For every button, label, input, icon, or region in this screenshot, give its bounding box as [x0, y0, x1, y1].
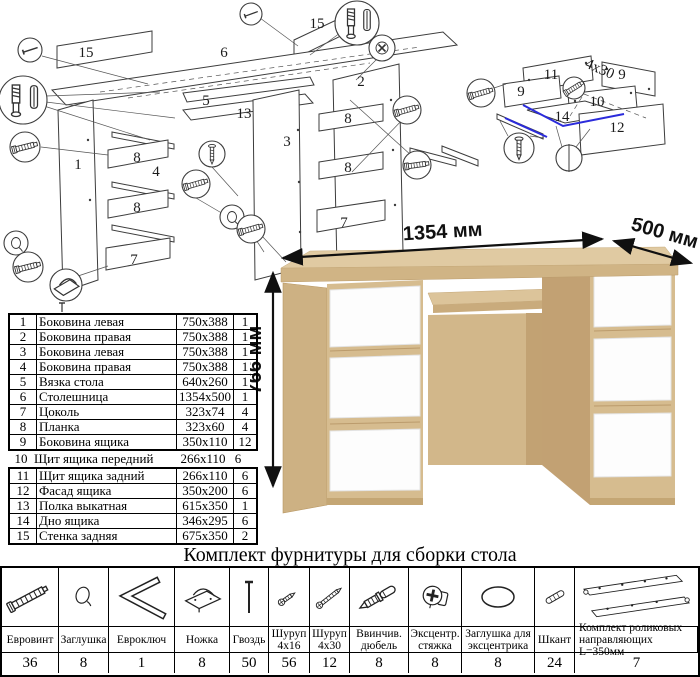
- callout-confirmat: [393, 96, 421, 124]
- hardware-name: Заглушка: [59, 626, 109, 653]
- hardware-name: Ножка: [175, 626, 230, 653]
- hardware-qty: 8: [462, 653, 535, 673]
- table-row: 8 Планка 323x60 4: [9, 420, 257, 435]
- part-label: 4: [152, 164, 160, 180]
- callout-nail: [240, 3, 262, 25]
- part-size: 350x110: [177, 435, 234, 451]
- part-label: 8: [133, 200, 141, 216]
- part-name: Боковина правая: [37, 330, 177, 345]
- part-name: Планка: [37, 420, 177, 435]
- cap-icon: [59, 568, 109, 626]
- part-qty: 1: [234, 390, 258, 405]
- confirmat-screw-icon: [2, 568, 59, 626]
- drawer-slides-icon: [575, 568, 698, 626]
- part-size: 750x388: [177, 345, 234, 360]
- part-name: Стенка задняя: [37, 529, 177, 545]
- part-name: Цоколь: [37, 405, 177, 420]
- part-name: Дно ящика: [37, 514, 177, 529]
- part-number: 5: [9, 375, 37, 390]
- callout-confirmat: [467, 79, 495, 107]
- part-number: 6: [9, 390, 37, 405]
- wood-dowel-icon: [535, 568, 575, 626]
- hardware-name: Эксцентр. стяжка: [409, 626, 462, 653]
- parts-table-bottom: 11 Щит ящика задний 266x110 6 12 Фасад я…: [8, 467, 258, 545]
- hardware-qty: 8: [175, 653, 230, 673]
- hardware-qty: 36: [2, 653, 59, 673]
- table-row: 10 Щит ящика передний 266x110 6: [8, 451, 245, 467]
- table-row: 1 Боковина левая 750x388 1: [9, 314, 257, 330]
- part-label: 1: [74, 157, 82, 173]
- part-size: 615x350: [177, 499, 234, 514]
- callout-dowel-sleeve: [0, 76, 47, 124]
- part-size: 640x260: [177, 375, 234, 390]
- callout-screw-4x30: [563, 77, 585, 99]
- part-size: 266x110: [175, 452, 231, 466]
- foot-icon: [175, 568, 230, 626]
- part-label: 14: [555, 109, 571, 125]
- part-qty: 6: [234, 484, 258, 499]
- hardware-name: Евроключ: [109, 626, 175, 653]
- table-row: 5 Вязка стола 640x260 1: [9, 375, 257, 390]
- part-name: Боковина правая: [37, 360, 177, 375]
- part-label: 10: [590, 94, 605, 110]
- part-qty: 1: [234, 360, 258, 375]
- hardware-qty: 56: [269, 653, 310, 673]
- part-number: 14: [9, 514, 37, 529]
- part-name: Щит ящика задний: [37, 468, 177, 484]
- callout-nail: [18, 38, 42, 62]
- hardware-qty: 50: [230, 653, 269, 673]
- parts-table: 1 Боковина левая 750x388 1 2 Боковина пр…: [8, 313, 245, 545]
- part-size: 750x388: [177, 314, 234, 330]
- part-label: 15: [310, 16, 325, 32]
- part-size: 750x388: [177, 360, 234, 375]
- table-row: 11 Щит ящика задний 266x110 6: [9, 468, 257, 484]
- table-row: 7 Цоколь 323x74 4: [9, 405, 257, 420]
- part-qty: 1: [234, 330, 258, 345]
- cam-cap-icon: [462, 568, 535, 626]
- part-back-panel-left: [57, 31, 152, 68]
- part-number: 1: [9, 314, 37, 330]
- part-size: 750x388: [177, 330, 234, 345]
- part-label: 6: [220, 45, 228, 61]
- part-label: 2: [357, 74, 365, 90]
- table-row: 14 Дно ящика 346x295 6: [9, 514, 257, 529]
- part-name: Боковина левая: [37, 314, 177, 330]
- part-label: 7: [130, 252, 138, 268]
- part-size: 346x295: [177, 514, 234, 529]
- hex-key-icon: [109, 568, 175, 626]
- part-name: Столешница: [37, 390, 177, 405]
- hardware-qty: 7: [575, 653, 698, 673]
- left-drawers: [330, 286, 420, 491]
- threaded-dowel-icon: [350, 568, 409, 626]
- hardware-name: Шкант: [535, 626, 575, 653]
- hardware-table: Евровинт 36 Заглушка 8 Евроключ 1: [0, 566, 700, 677]
- hardware-name: Заглушка для эксцентрика: [462, 626, 535, 653]
- callout-screw: [199, 141, 225, 167]
- part-qty: 1: [234, 345, 258, 360]
- callout-dowel-sleeve: [335, 1, 379, 45]
- part-qty: 1: [234, 499, 258, 514]
- hardware-qty: 12: [310, 653, 350, 673]
- part-number: 7: [9, 405, 37, 420]
- hardware-qty: 24: [535, 653, 575, 673]
- desk-body: [281, 247, 678, 513]
- table-row: 4 Боковина правая 750x388 1: [9, 360, 257, 375]
- table-row: 12 Фасад ящика 350x200 6: [9, 484, 257, 499]
- callout-pointer: [556, 144, 582, 172]
- part-name: Щит ящика передний: [34, 452, 175, 466]
- table-row: 3 Боковина левая 750x388 1: [9, 345, 257, 360]
- part-size: 675x350: [177, 529, 234, 545]
- part-name: Боковина ящика: [37, 435, 177, 451]
- part-number: 11: [9, 468, 37, 484]
- cam-lock-icon: [409, 568, 462, 626]
- part-name: Полка выкатная: [37, 499, 177, 514]
- part-label: 5: [202, 93, 210, 109]
- callout-confirmat: [13, 252, 43, 282]
- callout-confirmat: [10, 132, 40, 162]
- hardware-qty: 8: [59, 653, 109, 673]
- width-label: 1354 мм: [402, 219, 483, 246]
- hardware-name: Шуруп 4x30: [310, 626, 350, 653]
- part-label: 8: [344, 160, 352, 176]
- part-number: 9: [9, 435, 37, 451]
- part-qty: 1: [234, 375, 258, 390]
- part-size: 323x74: [177, 405, 234, 420]
- part-number: 8: [9, 420, 37, 435]
- hardware-name: Гвоздь: [230, 626, 269, 653]
- part-qty: 12: [234, 435, 258, 451]
- desk-photo: 1354 мм 500 мм 766 мм: [250, 218, 700, 548]
- table-row: 15 Стенка задняя 675x350 2: [9, 529, 257, 545]
- part-label: 9: [618, 67, 626, 83]
- part-label: 8: [133, 150, 141, 166]
- table-row: 2 Боковина правая 750x388 1: [9, 330, 257, 345]
- part-qty: 6: [231, 452, 245, 466]
- callout-plug: [4, 231, 28, 255]
- tabletop: [281, 247, 678, 268]
- part-qty: 1: [234, 314, 258, 330]
- part-number: 12: [9, 484, 37, 499]
- callout-confirmat: [182, 170, 210, 198]
- part-label: 15: [79, 45, 94, 61]
- hardware-qty: 8: [350, 653, 409, 673]
- part-qty: 2: [234, 529, 258, 545]
- part-label: 9: [517, 84, 525, 100]
- part-name: Боковина левая: [37, 345, 177, 360]
- part-number: 4: [9, 360, 37, 375]
- part-qty: 6: [234, 468, 258, 484]
- screw-small-icon: [269, 568, 310, 626]
- hardware-name: Комплект роликовых направляющих L=350мм: [575, 626, 698, 653]
- screw-long-icon: [310, 568, 350, 626]
- callout-cam: [369, 35, 395, 61]
- part-label: 8: [344, 111, 352, 127]
- part-number: 13: [9, 499, 37, 514]
- part-name: Фасад ящика: [37, 484, 177, 499]
- part-number: 3: [9, 345, 37, 360]
- part-size: 1354x500: [177, 390, 234, 405]
- hardware-qty: 1: [109, 653, 175, 673]
- part-number: 15: [9, 529, 37, 545]
- part-label: 13: [237, 106, 252, 122]
- table-row: 9 Боковина ящика 350x110 12: [9, 435, 257, 451]
- part-qty: 4: [234, 405, 258, 420]
- drawer-exploded-diagram: 4x30 11 9 9 10 14 12: [467, 56, 665, 172]
- part-side-left: [58, 100, 98, 292]
- callout-confirmat: [403, 151, 431, 179]
- part-number: 10: [8, 452, 34, 466]
- part-number: 2: [9, 330, 37, 345]
- hardware-title: Комплект фурнитуры для сборки стола: [0, 545, 700, 566]
- table-row: 6 Столешница 1354x500 1: [9, 390, 257, 405]
- assembly-instruction-sheet: 15 6 15 5 13 3 2 1 8 4 8 7 8 8 7: [0, 0, 700, 677]
- parts-table-top: 1 Боковина левая 750x388 1 2 Боковина пр…: [8, 313, 258, 451]
- part-label: 11: [544, 67, 558, 83]
- hardware-name: Ввинчив. дюбель: [350, 626, 409, 653]
- hardware-section: Комплект фурнитуры для сборки стола Евр: [0, 545, 700, 677]
- right-drawers: [594, 267, 671, 477]
- part-label: 3: [283, 134, 291, 150]
- callout-screw: [504, 133, 534, 163]
- hardware-name: Евровинт: [2, 626, 59, 653]
- hardware-qty: 8: [409, 653, 462, 673]
- part-qty: 6: [234, 514, 258, 529]
- nail-icon: [230, 568, 269, 626]
- callout-foot: [50, 269, 82, 312]
- part-size: 323x60: [177, 420, 234, 435]
- part-name: Вязка стола: [37, 375, 177, 390]
- part-qty: 4: [234, 420, 258, 435]
- part-size: 350x200: [177, 484, 234, 499]
- hardware-name: Шуруп 4x16: [269, 626, 310, 653]
- part-size: 266x110: [177, 468, 234, 484]
- table-row: 13 Полка выкатная 615x350 1: [9, 499, 257, 514]
- part-label: 12: [610, 120, 625, 136]
